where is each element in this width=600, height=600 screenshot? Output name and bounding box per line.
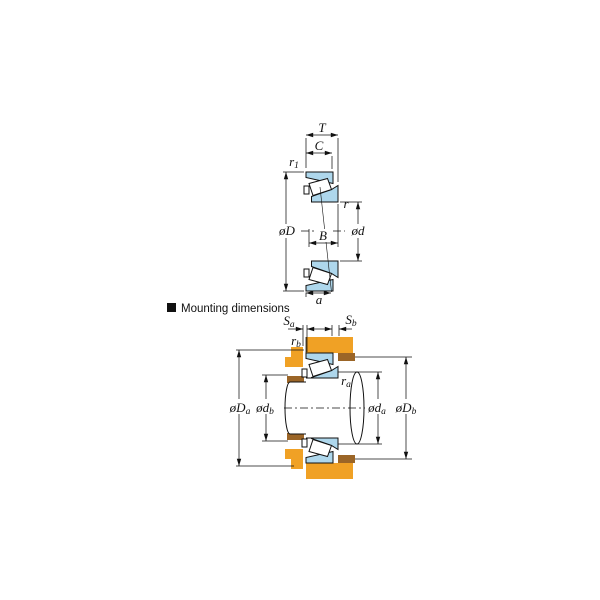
mounted-cage-tab-upper (302, 369, 307, 377)
label-r1: r1 (289, 154, 299, 171)
label-Sa: Sa (283, 313, 295, 330)
label-a: a (316, 292, 323, 307)
label-Sb: Sb (345, 312, 357, 329)
label-rb: rb (291, 333, 301, 350)
section-bullet-icon (167, 303, 176, 312)
label-outer-diameter: øD (278, 223, 296, 238)
cage-tab-upper (304, 186, 309, 194)
mounting-dimensions-figure: Sa Sb rb ra øDa ødb øda øDb (227, 312, 420, 479)
housing-block-lower (306, 463, 353, 479)
label-bore-diameter: ød (351, 223, 366, 238)
bearing-diagram-canvas: T C r1 øD ød r B a Mounting dimensions (0, 0, 600, 600)
section-header-label: Mounting dimensions (181, 303, 290, 315)
housing-shoulder-upper (338, 353, 355, 361)
mounted-cage-tab-lower (302, 439, 307, 447)
bearing-section-figure: T C r1 øD ød r B a (275, 120, 369, 307)
housing-block-upper (306, 337, 353, 353)
diagram-page: T C r1 øD ød r B a Mounting dimensions (0, 0, 600, 600)
label-r: r (343, 196, 349, 211)
label-C: C (315, 138, 324, 153)
label-T: T (318, 120, 326, 135)
cage-tab-lower (304, 269, 309, 277)
section-header: Mounting dimensions (167, 303, 290, 315)
label-B: B (319, 228, 327, 243)
housing-shoulder-lower (338, 455, 355, 463)
